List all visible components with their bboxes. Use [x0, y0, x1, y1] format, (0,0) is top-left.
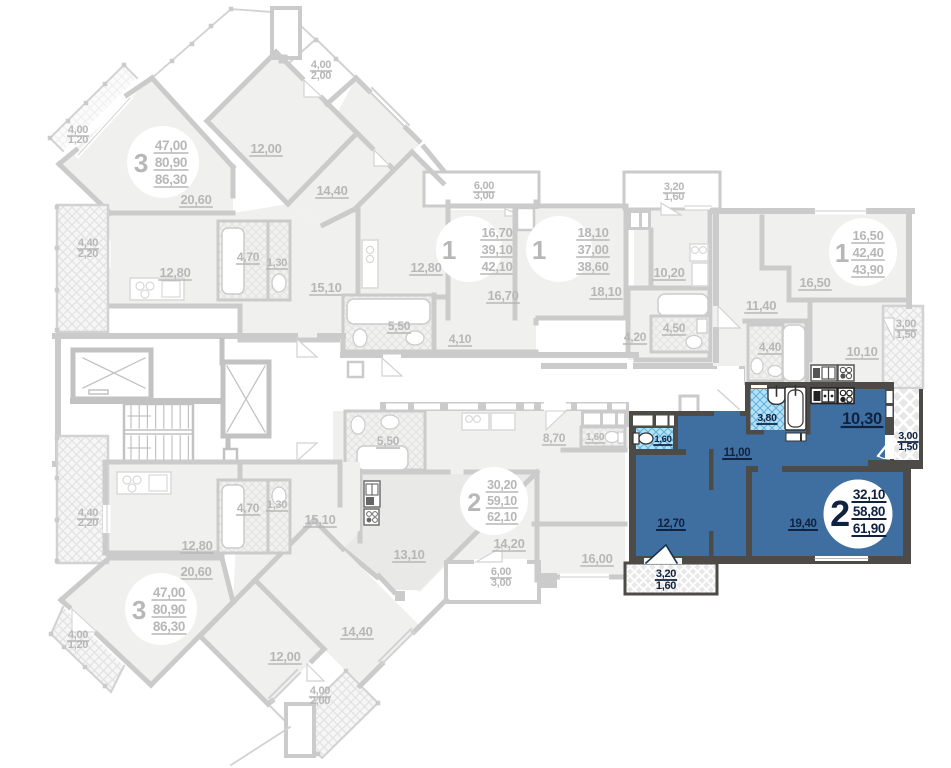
- svg-text:42,10: 42,10: [481, 259, 512, 274]
- svg-text:4,70: 4,70: [237, 501, 260, 515]
- svg-text:12,80: 12,80: [181, 538, 212, 553]
- svg-text:3,20: 3,20: [656, 568, 676, 580]
- svg-text:12,70: 12,70: [657, 518, 684, 530]
- svg-text:59,10: 59,10: [487, 494, 517, 508]
- svg-text:1,50: 1,50: [896, 329, 916, 341]
- svg-text:18,10: 18,10: [577, 225, 608, 240]
- svg-text:1,60: 1,60: [586, 432, 605, 443]
- svg-text:10,10: 10,10: [846, 344, 877, 359]
- svg-text:12,80: 12,80: [410, 260, 441, 275]
- svg-text:61,90: 61,90: [853, 521, 885, 536]
- svg-text:3,00: 3,00: [474, 190, 494, 202]
- svg-text:16,50: 16,50: [852, 228, 883, 243]
- svg-text:8,70: 8,70: [543, 431, 566, 445]
- svg-text:4,70: 4,70: [237, 250, 260, 264]
- svg-text:62,10: 62,10: [487, 510, 517, 524]
- svg-text:15,10: 15,10: [304, 512, 335, 527]
- svg-text:1: 1: [835, 238, 849, 268]
- svg-text:11,00: 11,00: [724, 447, 751, 459]
- svg-text:12,80: 12,80: [159, 265, 190, 280]
- svg-text:11,40: 11,40: [746, 298, 776, 313]
- svg-text:1,50: 1,50: [898, 441, 918, 453]
- svg-text:3,00: 3,00: [491, 577, 511, 589]
- svg-text:5,50: 5,50: [388, 319, 411, 333]
- svg-text:3,80: 3,80: [757, 412, 777, 424]
- svg-text:14,40: 14,40: [316, 183, 347, 198]
- svg-text:16,00: 16,00: [581, 551, 612, 566]
- svg-text:15,10: 15,10: [310, 280, 341, 295]
- svg-text:1: 1: [442, 235, 456, 265]
- svg-text:16,50: 16,50: [799, 275, 830, 290]
- svg-text:1,20: 1,20: [68, 639, 88, 651]
- svg-text:1,60: 1,60: [656, 580, 676, 592]
- svg-text:10,20: 10,20: [653, 265, 684, 280]
- svg-text:10,30: 10,30: [842, 410, 882, 428]
- svg-text:14,40: 14,40: [341, 624, 372, 639]
- svg-text:18,10: 18,10: [590, 284, 621, 299]
- svg-text:80,90: 80,90: [153, 602, 185, 617]
- svg-text:2,00: 2,00: [310, 695, 330, 707]
- svg-text:20,60: 20,60: [180, 192, 211, 207]
- svg-text:3: 3: [132, 595, 146, 625]
- svg-text:1,60: 1,60: [654, 434, 671, 445]
- svg-text:39,10: 39,10: [481, 242, 512, 257]
- svg-text:1,20: 1,20: [68, 134, 88, 146]
- svg-text:58,80: 58,80: [853, 504, 885, 519]
- svg-text:19,40: 19,40: [789, 518, 816, 530]
- svg-text:2,20: 2,20: [78, 248, 98, 260]
- svg-text:47,00: 47,00: [153, 585, 185, 600]
- svg-text:2: 2: [830, 493, 850, 534]
- svg-text:2: 2: [467, 489, 481, 517]
- svg-text:5,50: 5,50: [377, 434, 400, 448]
- svg-text:4,40: 4,40: [759, 340, 782, 354]
- svg-text:16,70: 16,70: [487, 288, 518, 303]
- svg-text:86,30: 86,30: [153, 619, 185, 634]
- svg-text:12,00: 12,00: [250, 141, 281, 156]
- svg-text:20,60: 20,60: [180, 564, 211, 579]
- svg-text:1,60: 1,60: [664, 191, 684, 203]
- svg-text:1: 1: [532, 235, 546, 265]
- svg-text:37,00: 37,00: [577, 242, 608, 257]
- svg-text:1,30: 1,30: [267, 257, 287, 269]
- svg-text:86,30: 86,30: [155, 172, 187, 187]
- svg-text:43,90: 43,90: [852, 262, 883, 277]
- svg-text:30,20: 30,20: [487, 478, 517, 492]
- svg-text:38,60: 38,60: [577, 259, 608, 274]
- svg-text:16,70: 16,70: [481, 225, 512, 240]
- svg-text:2,20: 2,20: [78, 517, 98, 529]
- svg-text:1,30: 1,30: [267, 499, 287, 511]
- svg-text:80,90: 80,90: [155, 155, 187, 170]
- svg-text:47,00: 47,00: [155, 138, 187, 153]
- svg-text:4,20: 4,20: [624, 330, 647, 344]
- svg-text:32,10: 32,10: [853, 487, 885, 502]
- svg-text:42,40: 42,40: [852, 245, 883, 260]
- svg-text:2,00: 2,00: [311, 70, 331, 82]
- svg-text:13,10: 13,10: [393, 547, 424, 562]
- svg-text:3: 3: [134, 148, 148, 178]
- svg-text:14,20: 14,20: [493, 536, 524, 551]
- svg-text:4,50: 4,50: [663, 321, 686, 335]
- svg-text:12,00: 12,00: [269, 649, 300, 664]
- svg-text:4,10: 4,10: [449, 332, 472, 346]
